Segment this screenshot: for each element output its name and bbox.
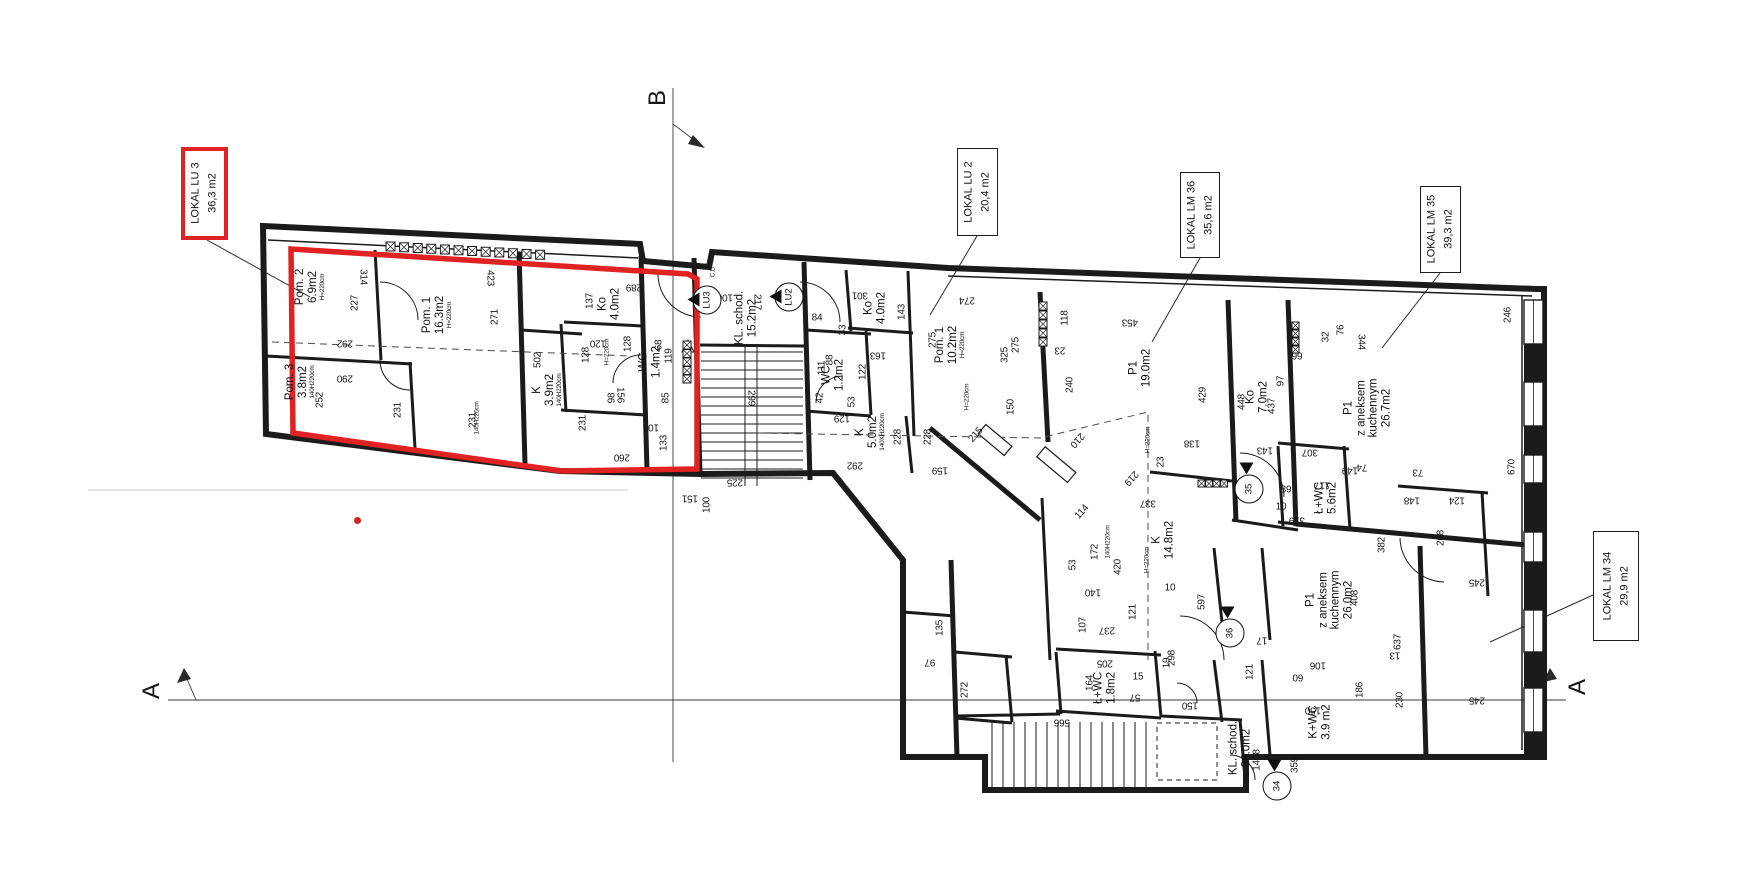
dimension-label: 299: [746, 390, 757, 406]
room-label-line: Ł+WC: [1092, 672, 1105, 704]
room-label: Ł+WC1.8m2: [1092, 672, 1117, 704]
dimension-label: H=220cm: [1145, 427, 1152, 454]
ceiling-height-note: 140H220cm: [309, 364, 316, 400]
room-label-line: WC: [637, 346, 650, 378]
marker-number: 35: [1243, 484, 1254, 495]
dimension-label: 228: [893, 429, 904, 445]
dimension-label: 137: [585, 293, 596, 309]
room-label: WC1.2m2: [820, 359, 845, 391]
dimension-label: 325: [1000, 347, 1011, 363]
lokal-label-lu3: LOKAL LU 336,3 m2: [181, 147, 228, 240]
ceiling-height-note: 140H220cm: [556, 373, 563, 406]
dimension-label: 118: [1060, 310, 1071, 325]
lokal-label-line: 20,4 m2: [978, 161, 995, 222]
room-label: WC1.4m2: [637, 346, 662, 378]
dimension-label: 230: [1395, 692, 1406, 708]
marker-number: 34: [1271, 781, 1282, 792]
dimension-label: 97: [1276, 376, 1287, 387]
dimension-label: 566: [1054, 717, 1070, 728]
dimension-label: 307: [1302, 447, 1318, 458]
room-label-line: 5.6m2: [1326, 482, 1339, 514]
dimension-label: 76: [1336, 325, 1347, 336]
staircase-lower: [992, 722, 1217, 788]
dimension-label: 245: [1469, 695, 1485, 706]
dimension-label: 119: [664, 348, 675, 363]
lokal-label-line: LOKAL LU 2: [960, 161, 977, 222]
marker-number: 36: [1224, 628, 1235, 639]
marker-number: LU2: [784, 288, 795, 305]
room-label: Pom. 116.3m2H=220cm: [421, 296, 453, 334]
dimension-label: 89: [1281, 485, 1292, 496]
section-mark-a-left: A: [138, 683, 166, 699]
room-label-line: 26.0m2: [1343, 571, 1356, 630]
dimension-label: 429: [1198, 387, 1209, 403]
circle-marker: 35: [1235, 475, 1264, 504]
lokal-label-lu2: LOKAL LU 220,4 m2: [957, 148, 998, 236]
lokal-label-line: LOKAL LM 35: [1423, 195, 1440, 264]
dimension-label: 246: [1503, 307, 1514, 323]
dimension-label: 104: [643, 422, 659, 433]
lokal-label-lm35: LOKAL LM 3539,3 m2: [1420, 186, 1461, 273]
room-label-line: Ko: [1244, 381, 1257, 413]
dimension-label: 231: [578, 415, 589, 431]
circle-marker: 34: [1263, 772, 1292, 801]
room-label-line: P1: [1127, 349, 1140, 387]
dimension-label: 172: [1090, 544, 1101, 560]
marker-pointer-icon: [1221, 607, 1235, 626]
dimension-label: 53: [847, 397, 858, 408]
dimension-label: 100: [702, 497, 713, 513]
lokal-label-line: 29,9 m2: [1616, 552, 1633, 621]
dimension-label: 121: [1128, 604, 1139, 620]
section-mark-a-right: A: [1564, 679, 1592, 695]
room-label-line: kuchennym: [1330, 571, 1343, 630]
dimension-label: 143: [1257, 445, 1273, 456]
room-label-line: K: [854, 413, 867, 450]
dimension-label: 13: [1390, 650, 1401, 661]
room-label: Ł+WC5.6m2: [1313, 482, 1338, 514]
room-label-line: 16.3m2: [433, 296, 446, 334]
dimension-label: 227: [350, 295, 361, 311]
room-label-line: P1: [1305, 571, 1318, 630]
dimension-label: 228: [923, 429, 934, 445]
room-label-line: 1.8m2: [1105, 672, 1118, 704]
dimension-label: 314: [358, 269, 369, 285]
dimension-label: 121: [1245, 664, 1256, 680]
dimension-label: 15: [1133, 672, 1144, 683]
dimension-label: 225: [727, 477, 743, 488]
dimension-label: 140: [1085, 587, 1101, 598]
room-label-line: P1: [1343, 379, 1356, 438]
room-label-line: Ł+WC: [1313, 482, 1326, 514]
dimension-label: 205: [1097, 658, 1113, 669]
marker-pointer-icon: [1268, 760, 1282, 779]
room-label-line: z aneksem: [1317, 571, 1330, 630]
dimension-label: 84: [812, 313, 823, 324]
room-label-line: 19.0m2: [1140, 349, 1153, 387]
dimension-label: 57: [1130, 692, 1141, 703]
dimension-label: 128: [581, 347, 592, 363]
dimension-label: 268: [1436, 530, 1447, 546]
dimension-label: 453: [1122, 317, 1138, 328]
room-label-line: KL. schod.: [733, 291, 746, 345]
room-label-line: 6.9m2: [306, 269, 319, 305]
room-label-line: Pom. 1: [934, 326, 947, 364]
dimension-label: 271: [490, 309, 501, 325]
section-mark-b: B: [644, 90, 672, 106]
room-label-line: 4.0m2: [609, 288, 622, 320]
lokal-label-line: LOKAL LM 36: [1183, 181, 1200, 250]
ceiling-height-note: H=220cm: [319, 269, 326, 305]
dimension-label: 337: [1140, 498, 1156, 509]
dimension-label: 237: [1099, 625, 1115, 636]
room-label: Pom. 26.9m2H=220cm: [294, 269, 326, 305]
dimension-label: 23: [1055, 345, 1066, 356]
dimension-label: 99: [1292, 352, 1303, 363]
dimension-label: 10: [1276, 502, 1287, 513]
lokal-label-line: 35,6 m2: [1200, 181, 1217, 250]
room-label: Ko4.0m2: [596, 288, 621, 320]
room-label-line: Pom. 3: [284, 364, 297, 400]
dimension-label: 423: [485, 270, 496, 286]
marker-pointer-icon: [1240, 463, 1254, 482]
dimension-label: 245: [1469, 577, 1485, 588]
dimension-label: 122: [858, 364, 869, 380]
dimension-label: 597: [1197, 594, 1208, 610]
room-label-line: z aneksem: [1355, 379, 1368, 438]
room-label-line: kuchennym: [1368, 379, 1381, 438]
dimension-label: 637: [1393, 634, 1404, 650]
dimension-label: 106: [1310, 660, 1326, 671]
dimension-label: 129: [834, 413, 850, 424]
room-label-line: 3.9m2: [543, 373, 556, 406]
dimension-label: 140H220cm: [474, 401, 481, 434]
dimension-label: 73: [1413, 467, 1424, 478]
dimension-label: 292: [847, 460, 863, 471]
dimension-label: 32: [1321, 332, 1332, 343]
dimension-label: 107: [1078, 617, 1089, 633]
dimension-label: 85: [661, 393, 672, 404]
dimension-label: 128: [623, 336, 634, 352]
floor-plan: B A A 3144232272922902522312312312715021…: [0, 0, 1743, 874]
marker-pointer-icon: [763, 290, 782, 304]
dimension-label: 148: [1404, 495, 1420, 506]
marker-pointer-icon: [681, 293, 700, 307]
dimension-label: 292: [337, 338, 353, 349]
dimension-label: 138: [1184, 438, 1200, 449]
room-label: P1z aneksemkuchennym26.0m2: [1305, 571, 1356, 630]
room-label: K+WC3.9 m2: [1307, 704, 1332, 739]
dimension-label: 140H220cm: [1105, 525, 1112, 558]
dimension-label: H=220cm: [964, 384, 971, 411]
dimension-label: 10: [1165, 583, 1176, 594]
dimension-label: 133: [659, 435, 670, 451]
dimension-label: H=220cm: [604, 339, 611, 366]
room-label: K14.8m2: [1150, 521, 1175, 559]
lokal-label-line: LOKAL LM 34: [1599, 552, 1616, 621]
dimension-label: 135: [935, 620, 946, 636]
dimension-label: 150: [1182, 700, 1198, 711]
dimension-label: 42: [815, 393, 826, 404]
room-label-line: 5.0m2: [866, 413, 879, 450]
room-label-line: 1.4m2: [650, 346, 663, 378]
room-label: Pom. 33.8m2140H220cm: [284, 364, 316, 400]
room-label-line: 10.2m2: [946, 326, 959, 364]
room-label-line: WC: [820, 359, 833, 391]
circle-marker: LU3: [693, 286, 722, 315]
dimension-label: 319: [1289, 515, 1305, 526]
dimension-label: 1408: [1252, 749, 1263, 770]
room-label-line: K+WC: [1307, 704, 1320, 739]
dimension-label: 275: [1011, 337, 1022, 353]
dimension-label: 53: [1068, 560, 1079, 571]
dimension-label: 151: [682, 493, 698, 504]
room-label-line: Pom. 1: [421, 296, 434, 334]
room-label-line: 1.2m2: [833, 359, 846, 391]
dimension-label: 502: [533, 352, 544, 368]
marker-number: LU3: [702, 291, 713, 308]
ceiling-height-note: H=220cm: [959, 326, 966, 364]
circle-marker: 36: [1216, 619, 1245, 648]
room-label-line: Pom. 2: [294, 269, 307, 305]
lokal-label-line: LOKAL LU 3: [187, 163, 204, 224]
dimension-label: 289: [626, 282, 642, 293]
lokal-label-lm34: LOKAL LM 3429,9 m2: [1593, 531, 1639, 641]
dimension-label: 382: [1377, 537, 1388, 553]
dimension-label: 98: [607, 393, 618, 404]
dimension-label: 272: [960, 682, 971, 698]
room-label-line: 4.0m2: [875, 292, 888, 324]
room-label: P119.0m2: [1127, 349, 1152, 387]
room-label-line: 3.9 m2: [1320, 704, 1333, 739]
dimension-label: 163: [870, 350, 886, 361]
room-label-line: KL. schod.: [1227, 721, 1240, 775]
dimension-label: 60: [1293, 672, 1304, 683]
room-label-line: 14.8m2: [1163, 521, 1176, 559]
lokal-label-line: 39,3 m2: [1441, 195, 1458, 264]
dimension-label: 33: [838, 325, 849, 336]
dimension-label: 274: [959, 295, 975, 306]
dimension-label: 150: [1006, 399, 1017, 415]
dimension-label: 260: [614, 452, 630, 463]
room-label-line: Ko: [596, 288, 609, 320]
dimension-label: 124: [1449, 495, 1465, 506]
red-dot: [354, 517, 361, 524]
dimension-label: 186: [1355, 682, 1366, 698]
window-symbols: [386, 242, 1543, 755]
dimension-label: 159: [932, 465, 948, 476]
room-label-line: Ko: [862, 292, 875, 324]
dimension-label: 143: [897, 304, 908, 320]
room-label: Pom. 110.2m2H=220cm: [934, 326, 966, 364]
dimension-label: C,D: [710, 267, 717, 278]
dimension-label: 74: [1357, 462, 1368, 473]
dimension-label: 359: [1290, 757, 1301, 773]
room-label: K5.0m2140XH220cm: [854, 413, 886, 450]
ceiling-height-note: 140XH220cm: [879, 413, 886, 450]
dimension-label: 344: [1356, 334, 1367, 350]
circle-marker: LU2: [775, 283, 804, 312]
room-label: P1z aneksemkuchennym26.7m2: [1343, 379, 1394, 438]
room-label-line: 36.0m2: [1240, 721, 1253, 775]
room-label-line: K: [1150, 521, 1163, 559]
ceiling-height-note: H=220cm: [446, 296, 453, 334]
room-label-line: 7.0m2: [1257, 381, 1270, 413]
dimension-label: 17: [1257, 635, 1268, 646]
interior-walls-structural: [519, 252, 1537, 757]
dimension-label: 97: [925, 657, 936, 668]
room-label-line: 26.7m2: [1381, 379, 1394, 438]
dimension-label: 290: [337, 373, 353, 384]
lokal-label-lm36: LOKAL LM 3635,6 m2: [1180, 172, 1220, 258]
room-label: Ko7.0m2: [1244, 381, 1269, 413]
dimension-label: 420: [1113, 559, 1124, 575]
room-label-line: K: [531, 373, 544, 406]
dimension-label: 670: [1507, 459, 1518, 475]
dimension-label: 231: [393, 402, 404, 418]
room-label-line: 3.8m2: [296, 364, 309, 400]
dimension-label: 23: [1156, 457, 1167, 468]
room-label: KL. schod.36.0m2: [1227, 721, 1252, 775]
room-label-line: 15.2m2: [746, 291, 759, 345]
room-label: Ko4.0m2: [862, 292, 887, 324]
dimension-label: 298: [1167, 650, 1178, 666]
dimension-label: 240: [1065, 377, 1076, 393]
room-label: KL. schod.15.2m2: [733, 291, 758, 345]
lokal-label-line: 36,3 m2: [205, 163, 222, 224]
room-label: K3.9m2140H220cm: [531, 373, 563, 406]
